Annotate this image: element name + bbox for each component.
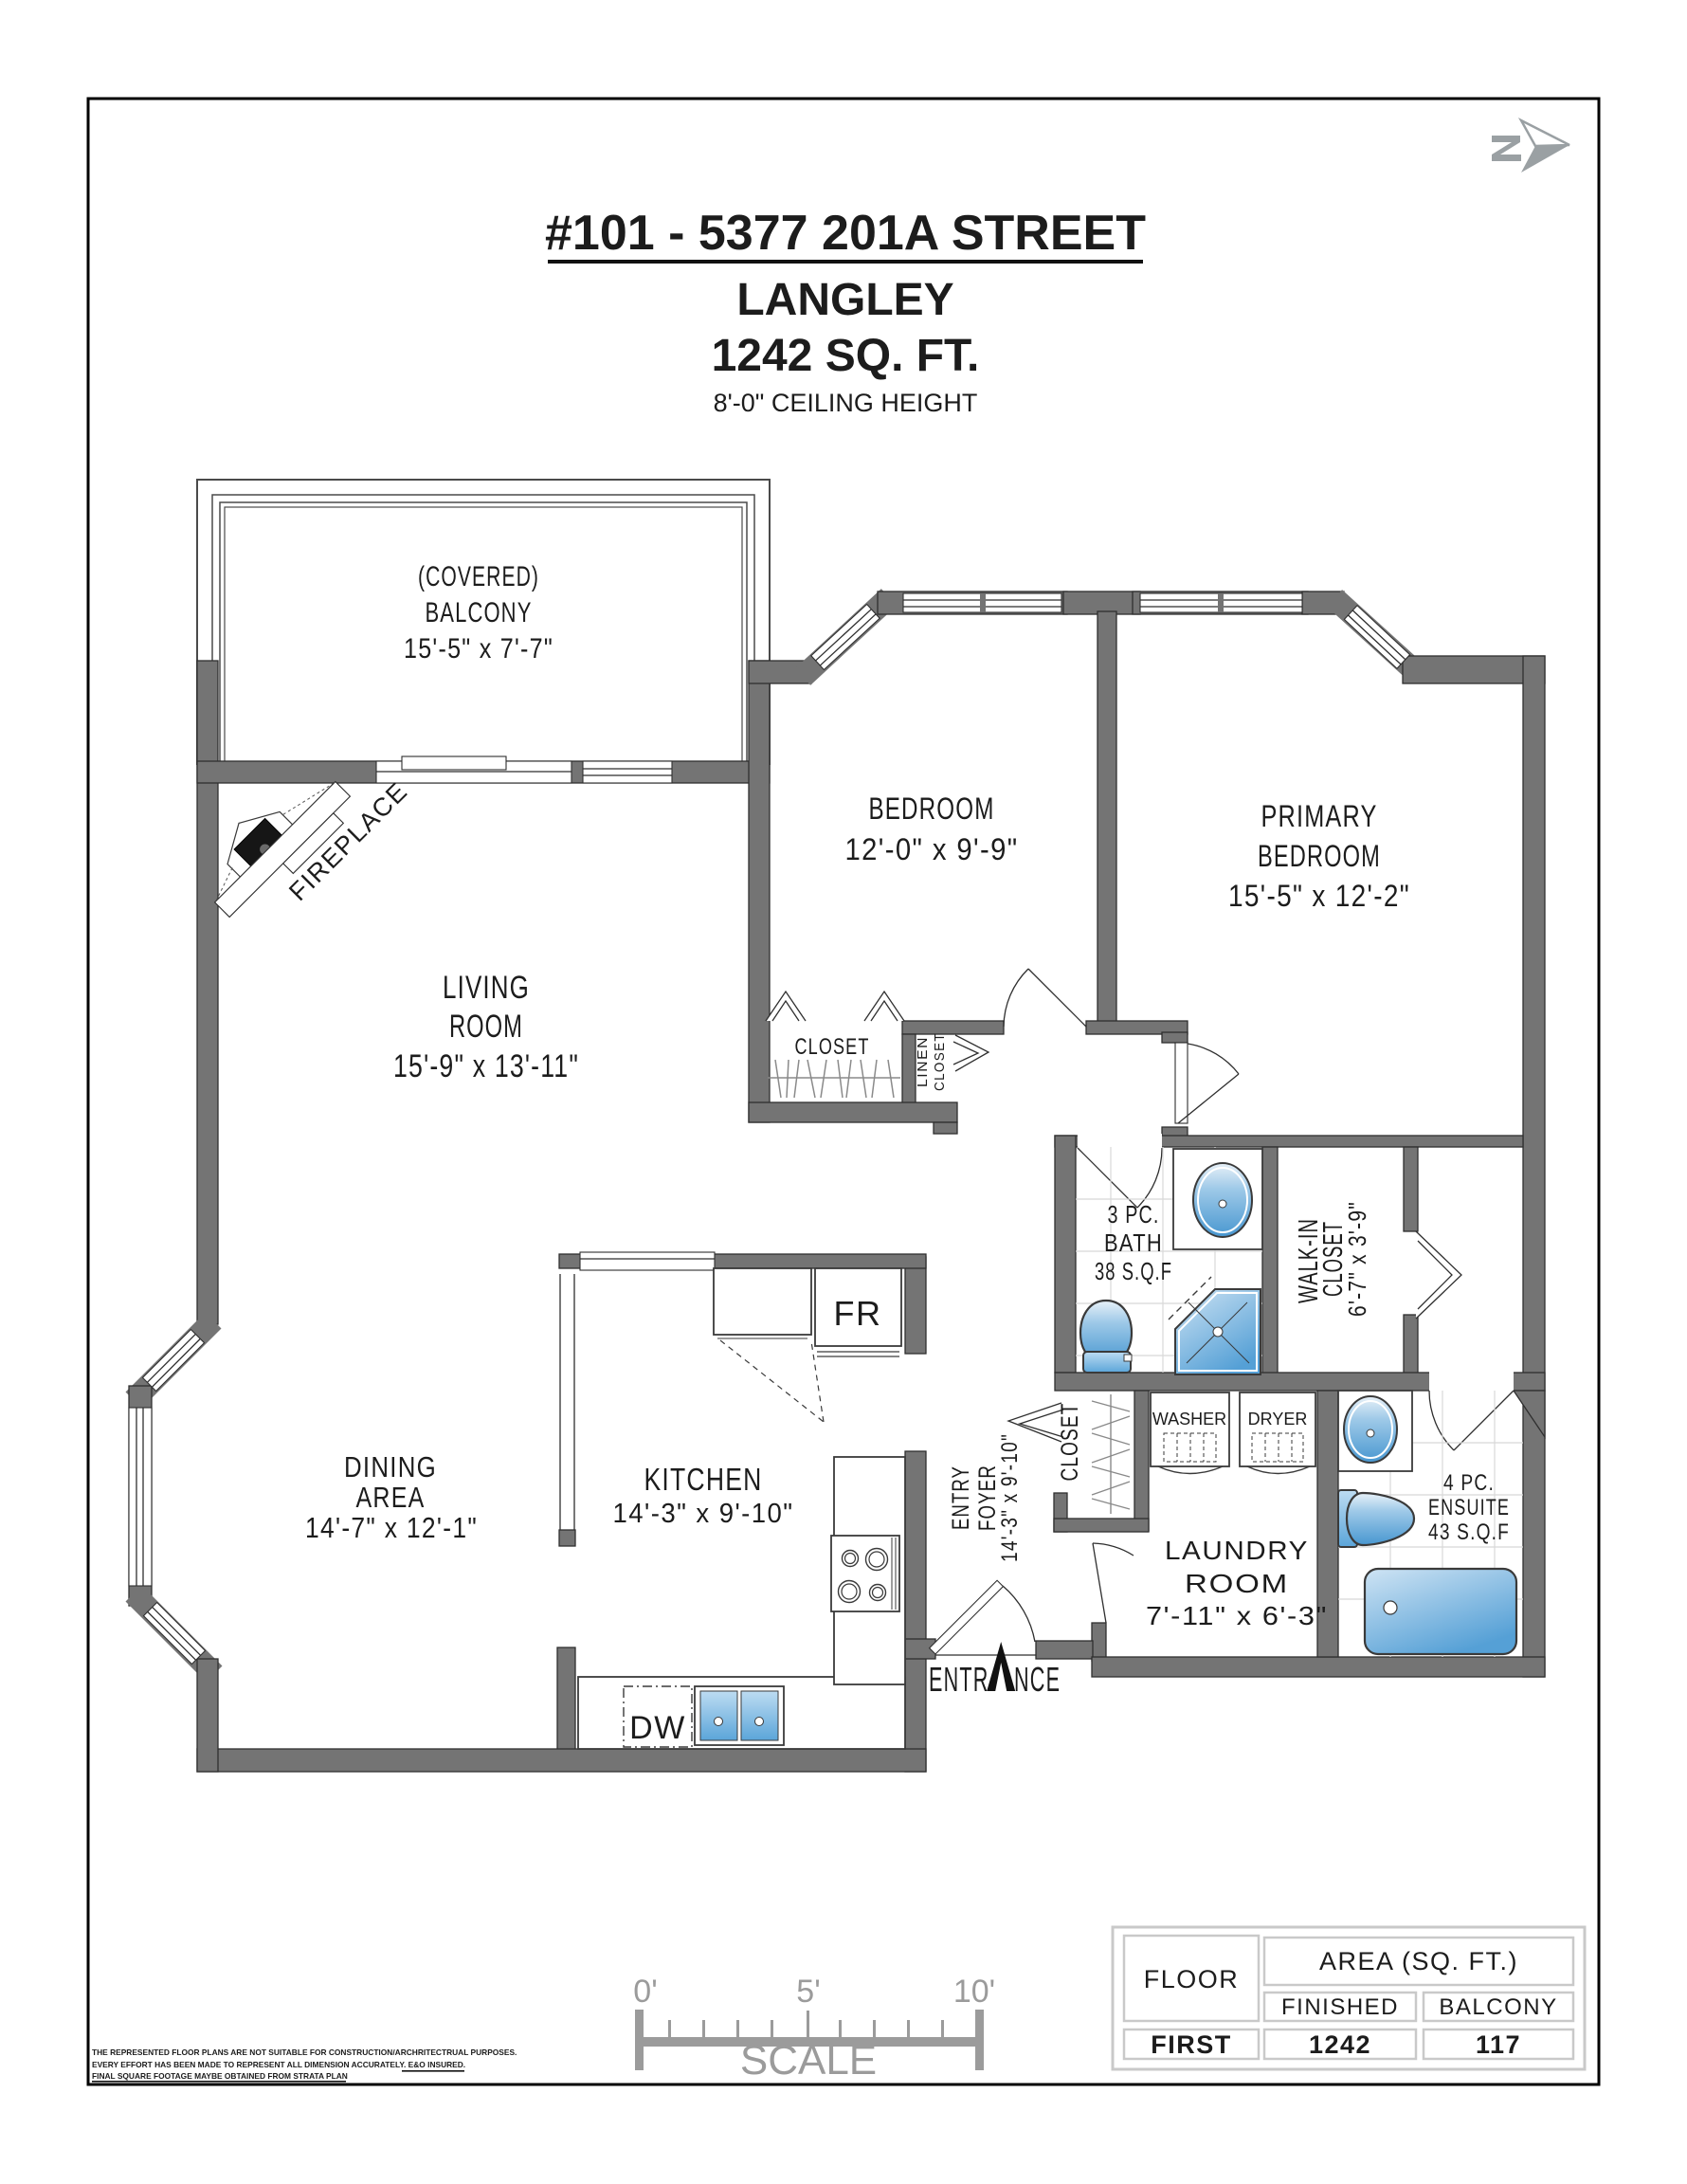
svg-text:7'-11" x 6'-3": 7'-11" x 6'-3" — [1146, 1601, 1328, 1630]
svg-text:CLOSET: CLOSET — [1057, 1403, 1083, 1482]
svg-text:43 S.Q.F: 43 S.Q.F — [1428, 1520, 1510, 1545]
svg-text:ROOM: ROOM — [449, 1009, 523, 1045]
svg-text:ENTRY: ENTRY — [948, 1465, 974, 1530]
svg-text:LANGLEY: LANGLEY — [736, 275, 953, 325]
svg-text:BATH: BATH — [1104, 1228, 1163, 1257]
svg-text:38 S.Q.F: 38 S.Q.F — [1095, 1257, 1172, 1285]
svg-text:AREA (SQ. FT.): AREA (SQ. FT.) — [1319, 1947, 1518, 1975]
svg-text:SCALE: SCALE — [740, 2037, 877, 2084]
svg-text:3 PC.: 3 PC. — [1108, 1200, 1160, 1228]
svg-text:LINEN: LINEN — [915, 1036, 931, 1087]
svg-text:5': 5' — [796, 1974, 820, 2010]
svg-text:1242 SQ. FT.: 1242 SQ. FT. — [712, 331, 980, 381]
svg-text:(COVERED): (COVERED) — [418, 561, 539, 592]
svg-text:1242: 1242 — [1309, 2030, 1371, 2059]
svg-text:DRYER: DRYER — [1248, 1410, 1308, 1429]
svg-text:BALCONY: BALCONY — [426, 597, 533, 628]
svg-text:LIVING: LIVING — [443, 970, 530, 1006]
svg-text:14'-3" x 9'-10": 14'-3" x 9'-10" — [997, 1433, 1023, 1562]
svg-text:BEDROOM: BEDROOM — [869, 792, 995, 826]
svg-text:LAUNDRY: LAUNDRY — [1165, 1536, 1309, 1565]
svg-text:8'-0" CEILING HEIGHT: 8'-0" CEILING HEIGHT — [714, 389, 978, 417]
svg-text:DINING: DINING — [344, 1450, 437, 1483]
svg-text:FINISHED: FINISHED — [1281, 1994, 1399, 2020]
svg-text:PRIMARY: PRIMARY — [1261, 799, 1378, 833]
svg-text:15'-5" x 12'-2": 15'-5" x 12'-2" — [1228, 879, 1410, 913]
svg-text:ROOM: ROOM — [1185, 1569, 1289, 1598]
svg-text:CLOSET: CLOSET — [795, 1034, 870, 1060]
svg-text:THE REPRESENTED FLOOR PLANS AR: THE REPRESENTED FLOOR PLANS ARE NOT SUIT… — [92, 2047, 517, 2057]
svg-text:WASHER: WASHER — [1152, 1410, 1226, 1429]
svg-text:FR: FR — [834, 1294, 882, 1333]
svg-text:EVERY EFFORT HAS BEEN MADE TO: EVERY EFFORT HAS BEEN MADE TO REPRESENT … — [92, 2060, 465, 2069]
svg-text:#101 - 5377 201A STREET: #101 - 5377 201A STREET — [545, 206, 1146, 261]
svg-text:NCE: NCE — [1014, 1661, 1061, 1699]
svg-text:BEDROOM: BEDROOM — [1258, 839, 1381, 873]
svg-text:ENTR: ENTR — [929, 1661, 989, 1699]
svg-text:0': 0' — [633, 1974, 657, 2010]
svg-text:117: 117 — [1476, 2030, 1521, 2059]
svg-text:14'-3" x 9'-10": 14'-3" x 9'-10" — [613, 1499, 794, 1529]
svg-text:10': 10' — [953, 1974, 995, 2010]
svg-text:FLOOR: FLOOR — [1144, 1965, 1240, 1993]
svg-text:AREA: AREA — [356, 1481, 426, 1514]
svg-text:FIRST: FIRST — [1151, 2030, 1232, 2059]
svg-text:4 PC.: 4 PC. — [1443, 1470, 1495, 1496]
svg-text:ENSUITE: ENSUITE — [1428, 1495, 1510, 1520]
svg-text:CLOSET: CLOSET — [932, 1032, 948, 1091]
svg-text:14'-7" x 12'-1": 14'-7" x 12'-1" — [305, 1511, 478, 1544]
svg-text:15'-9" x 13'-11": 15'-9" x 13'-11" — [393, 1048, 579, 1084]
svg-text:FINAL SQUARE FOOTAGE MAYBE OBT: FINAL SQUARE FOOTAGE MAYBE OBTAINED FROM… — [92, 2071, 348, 2081]
svg-text:6'-7" x 3'-9": 6'-7" x 3'-9" — [1343, 1201, 1371, 1317]
svg-text:12'-0" x 9'-9": 12'-0" x 9'-9" — [845, 832, 1019, 866]
svg-text:DW: DW — [629, 1710, 686, 1746]
svg-text:KITCHEN: KITCHEN — [644, 1462, 763, 1497]
svg-text:BALCONY: BALCONY — [1439, 1994, 1557, 2020]
svg-text:15'-5" x 7'-7": 15'-5" x 7'-7" — [404, 633, 553, 664]
